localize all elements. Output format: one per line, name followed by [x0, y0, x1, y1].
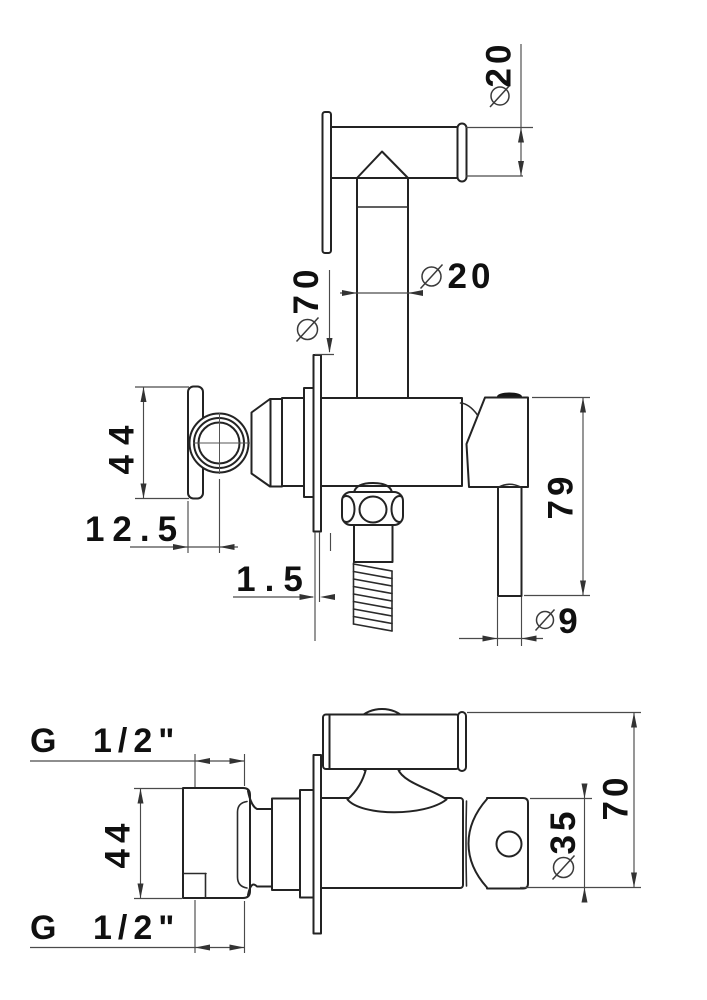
flange-hub [304, 388, 314, 497]
arrowhead [141, 387, 147, 402]
lever-bar [323, 715, 459, 770]
control-handle-base [467, 398, 529, 488]
arrowhead [408, 290, 423, 296]
trigger-lever [323, 112, 332, 253]
arrowhead [582, 888, 588, 903]
thread-groove-bottom [248, 885, 272, 895]
hose-coil [354, 579, 393, 586]
nozzle-end-cap [458, 124, 467, 182]
handle-rod [498, 487, 522, 596]
diameter-symbol [536, 610, 555, 631]
holder-gap-line [466, 801, 467, 886]
dim-label: 35 [544, 808, 583, 855]
arrowhead [320, 594, 335, 600]
holder-cup-arc [469, 799, 488, 888]
pivot-arc [461, 403, 478, 415]
thread-label-prefix: G [30, 722, 56, 760]
arrowhead [518, 128, 524, 143]
dim-label: 9 [558, 602, 577, 641]
hose-coil [354, 564, 393, 571]
hose-coil [354, 617, 393, 624]
arrowhead [230, 758, 245, 764]
dim-body-diameter: 35 [530, 784, 592, 903]
dim-label: 20 [480, 41, 519, 88]
hose-coil [354, 602, 393, 609]
thread-label-prefix: G [30, 909, 56, 947]
arrowhead [582, 784, 588, 799]
arrowhead [138, 884, 144, 899]
dim-label: 70 [597, 774, 636, 821]
dim-handle-length: 79 [524, 398, 590, 596]
hose-coil [354, 624, 393, 631]
arrowhead [518, 161, 524, 176]
dim-bracket-offset: 12.5 [85, 479, 238, 553]
dim-flange-thickness: 1.5 [233, 532, 335, 641]
arrowhead [220, 544, 235, 550]
arrowhead [483, 636, 498, 642]
dim-label: 12.5 [85, 510, 185, 549]
dim-label: 79 [542, 473, 581, 520]
dim-inlet-thread-top: G 1/2" [30, 722, 245, 787]
thread-label-value: 1/2" [93, 909, 180, 947]
wall-flange-top-view [314, 755, 322, 934]
body-step-section [272, 799, 300, 891]
dim-label: 20 [448, 257, 495, 296]
thread-label-value: 1/2" [93, 722, 180, 760]
valve-neck [252, 399, 271, 487]
wall-flange [314, 355, 322, 532]
hose-coil [354, 609, 393, 616]
arrowhead [522, 636, 537, 642]
lever-bar-end-cap [458, 712, 466, 771]
dim-inlet-height: 44 [99, 789, 183, 899]
dim-handle-diameter: 9 [459, 597, 578, 646]
technical-drawing-page: 20 20 70 44 12.5 [0, 0, 707, 1000]
arrowhead [138, 789, 144, 804]
arrowhead [631, 873, 637, 888]
flange-hub-top-view [300, 790, 314, 898]
arrowhead [580, 398, 586, 413]
hose-coil [354, 594, 393, 601]
hose-coil [354, 572, 393, 579]
top-view [183, 709, 528, 934]
diameter-symbol [421, 265, 443, 289]
lever-bell-neck [348, 769, 447, 812]
arrowhead [195, 758, 210, 764]
dim-label: 44 [99, 818, 138, 869]
dim-inlet-thread-bottom: G 1/2" [30, 900, 245, 953]
hose-coil [354, 587, 393, 594]
hose-connector [339, 483, 408, 562]
arrowhead [141, 484, 147, 499]
arrowhead [195, 945, 210, 951]
dim-label: 44 [103, 416, 142, 475]
dim-label: 70 [287, 264, 326, 315]
arrowhead [631, 713, 637, 728]
diameter-symbol [553, 856, 575, 880]
arrowhead [327, 338, 333, 353]
arrowhead [342, 290, 357, 296]
hose-neck [354, 525, 393, 562]
dim-bracket-height: 44 [103, 387, 190, 499]
arrowhead [580, 581, 586, 596]
dim-label: 1.5 [236, 560, 312, 599]
spray-head-body [331, 127, 459, 178]
dim-pipe-diameter: 20 [340, 257, 494, 296]
technical-drawing: 20 20 70 44 12.5 [0, 0, 707, 1000]
arrowhead [230, 945, 245, 951]
valve-neck-collar [271, 399, 283, 487]
thread-groove-top [248, 791, 272, 809]
diameter-symbol [297, 318, 319, 342]
supply-pipe [357, 178, 408, 397]
front-view [188, 112, 528, 631]
dim-nozzle-diameter: 20 [466, 41, 533, 176]
flex-hose [354, 563, 393, 631]
